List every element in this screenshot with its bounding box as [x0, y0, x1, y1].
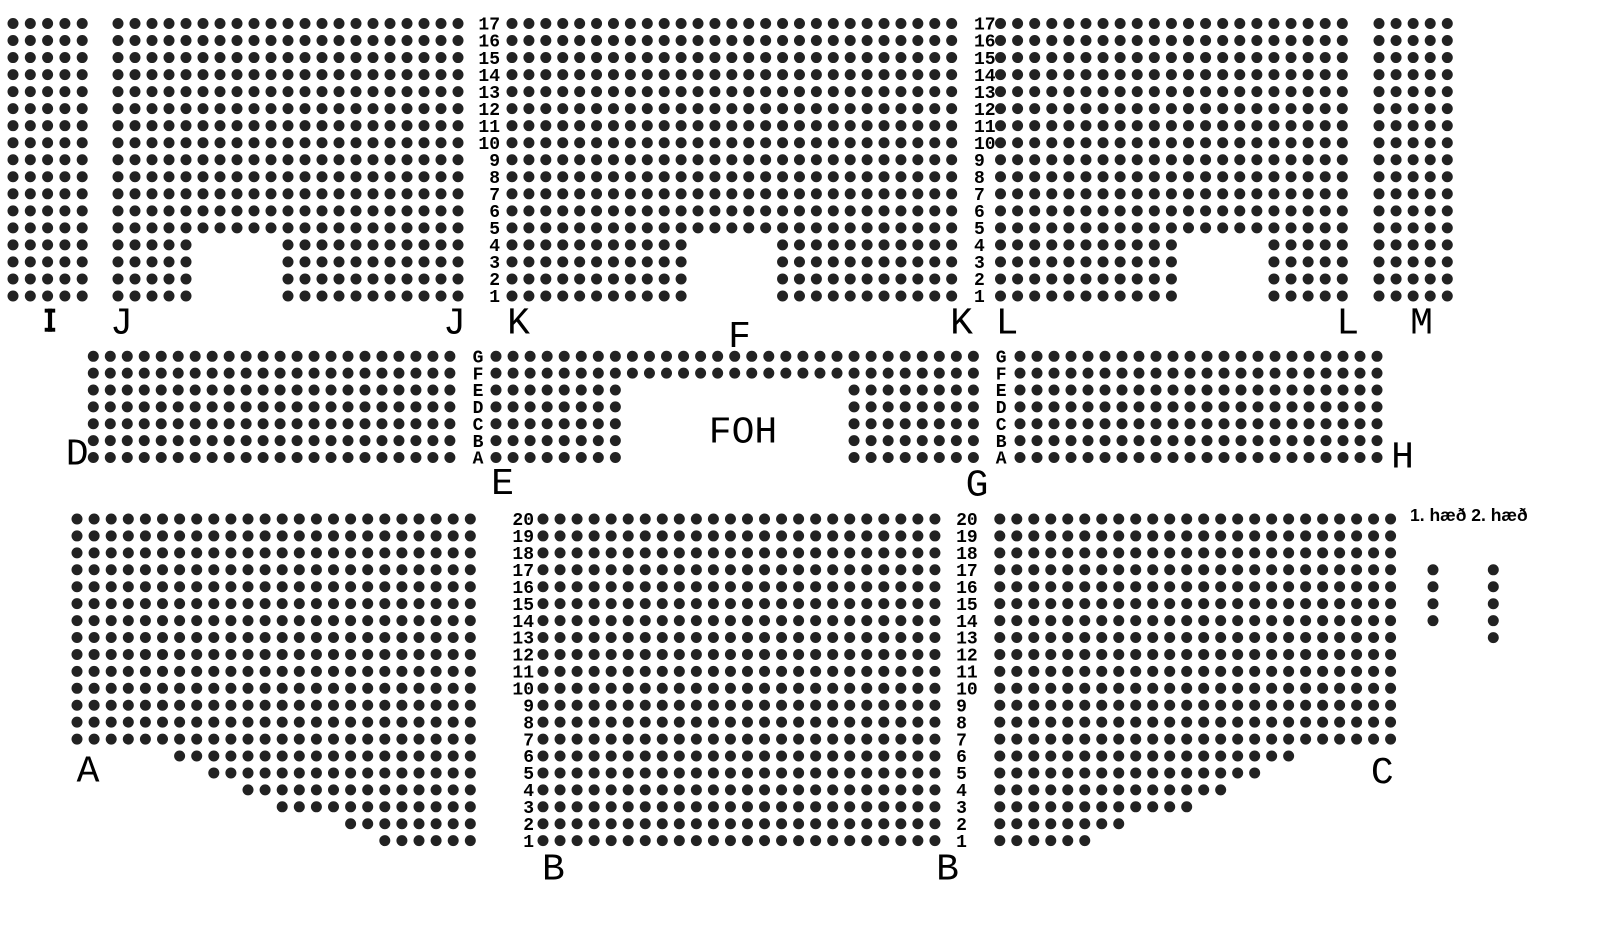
svg-text:K: K	[950, 303, 973, 346]
svg-text:A: A	[996, 450, 1007, 470]
svg-text:B: B	[936, 849, 959, 892]
svg-text:1: 1	[974, 288, 985, 308]
svg-text:L: L	[996, 303, 1019, 346]
svg-text:C: C	[1371, 752, 1394, 795]
svg-text:K: K	[507, 303, 530, 346]
svg-text:J: J	[443, 303, 466, 346]
svg-text:FOH: FOH	[709, 412, 777, 455]
svg-text:B: B	[542, 849, 565, 892]
svg-text:A: A	[473, 450, 484, 470]
svg-text:1. hæð 2. hæð: 1. hæð 2. hæð	[1410, 505, 1528, 525]
svg-text:E: E	[491, 463, 514, 506]
svg-text:H: H	[1391, 437, 1414, 480]
svg-text:D: D	[66, 434, 89, 477]
svg-text:A: A	[77, 751, 100, 794]
svg-text:F: F	[728, 316, 751, 359]
svg-text:1: 1	[523, 833, 534, 853]
svg-text:G: G	[966, 465, 989, 508]
svg-text:J: J	[110, 303, 133, 346]
svg-text:M: M	[1410, 303, 1433, 346]
svg-text:1: 1	[489, 288, 500, 308]
svg-text:L: L	[1336, 303, 1359, 346]
